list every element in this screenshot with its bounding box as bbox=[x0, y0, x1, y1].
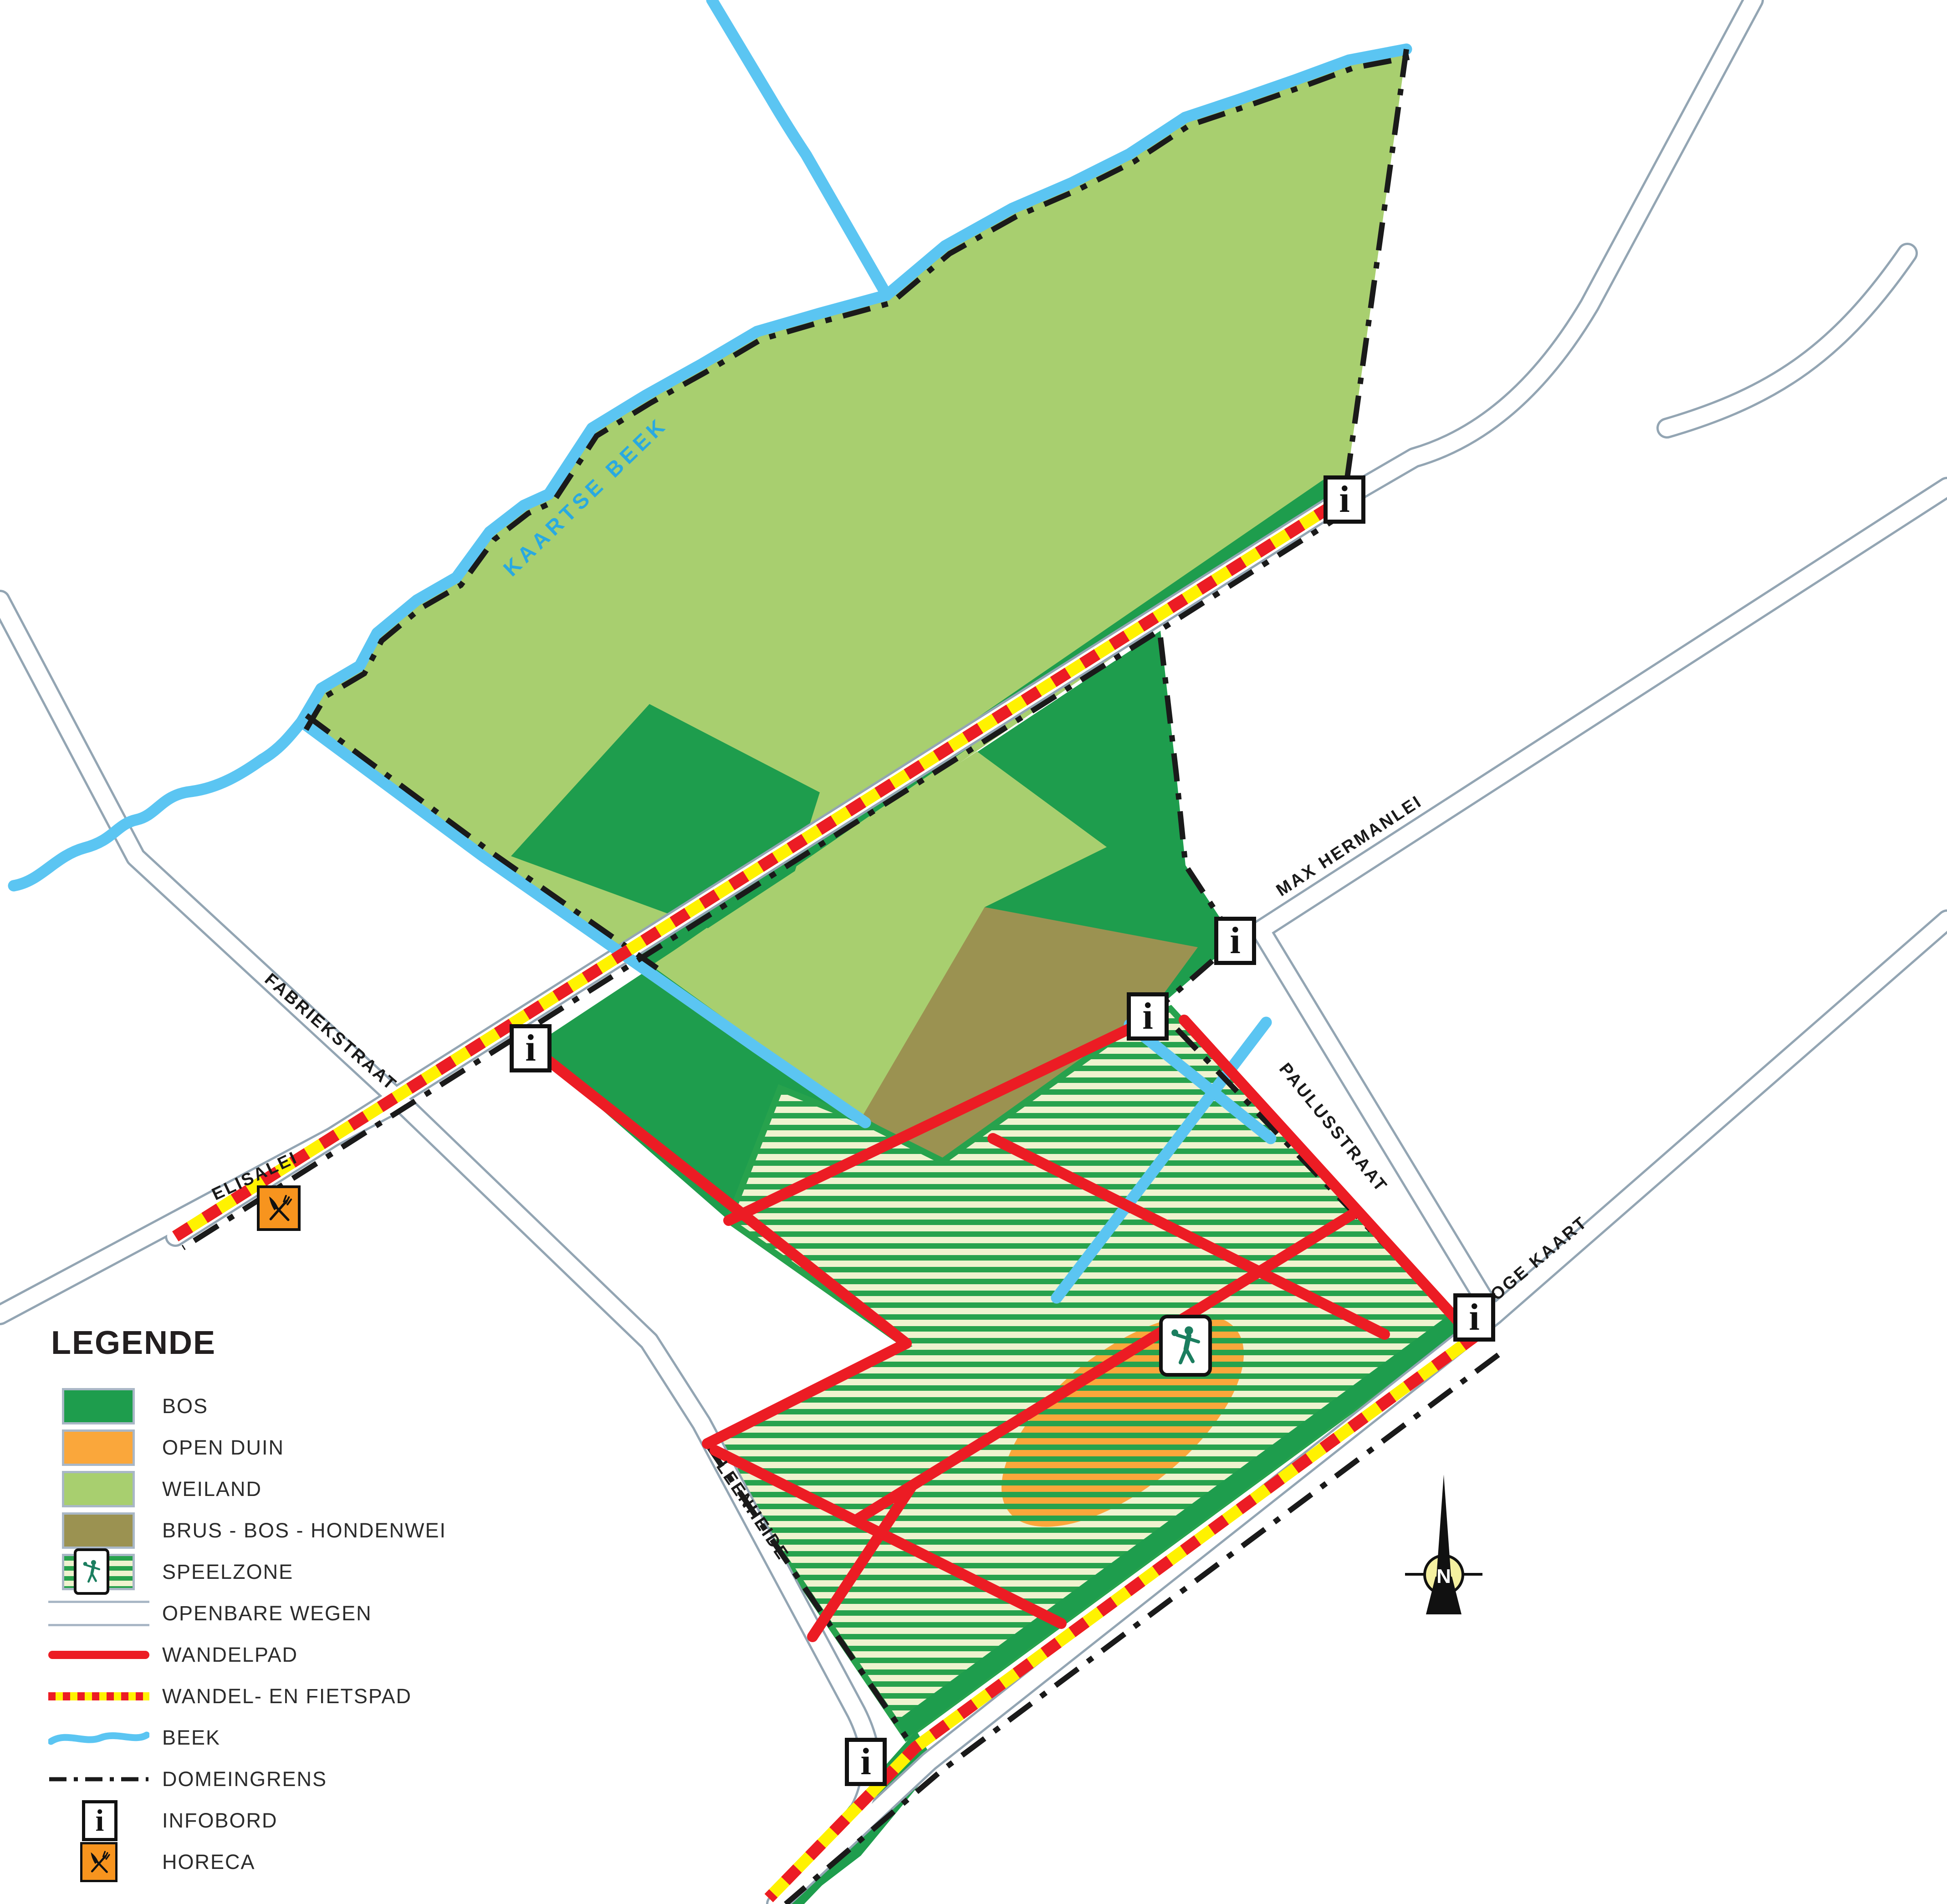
infobord-marker-max-hermanlei[interactable]: i bbox=[1214, 917, 1256, 965]
domeingrens-line bbox=[48, 1775, 149, 1784]
info-icon: i bbox=[82, 1800, 118, 1841]
beek-line bbox=[48, 1728, 149, 1748]
info-icon: i bbox=[860, 1745, 871, 1779]
knife-fork-icon bbox=[80, 1842, 118, 1882]
legend-item-bos: BOS bbox=[48, 1385, 572, 1427]
legend-item-fietspad: WANDEL- EN FIETSPAD bbox=[48, 1675, 572, 1717]
info-icon: i bbox=[1469, 1300, 1479, 1335]
legend-item-speelzone: SPEELZONE bbox=[48, 1551, 572, 1593]
info-icon: i bbox=[1230, 924, 1240, 958]
bos-swatch bbox=[62, 1388, 135, 1424]
playing-person-icon bbox=[74, 1548, 109, 1595]
fietspad-line bbox=[48, 1692, 149, 1700]
open-duin-swatch bbox=[62, 1429, 135, 1466]
legend-item-open-duin: OPEN DUIN bbox=[48, 1427, 572, 1468]
infobord-marker-fabriekstraat[interactable]: i bbox=[510, 1024, 552, 1072]
infobord-marker-north[interactable]: i bbox=[1324, 475, 1365, 524]
legend-title: LEGENDE bbox=[51, 1324, 572, 1362]
legend-item-infobord: i INFOBORD bbox=[48, 1800, 572, 1841]
brus-swatch bbox=[62, 1512, 135, 1549]
legend-item-wandelpad: WANDELPAD bbox=[48, 1634, 572, 1675]
info-icon: i bbox=[525, 1031, 536, 1066]
info-icon: i bbox=[1142, 999, 1153, 1034]
speelzone-marker[interactable] bbox=[1159, 1315, 1212, 1377]
infobord-marker-south[interactable]: i bbox=[845, 1738, 887, 1786]
legend-item-domeingrens: DOMEINGRENS bbox=[48, 1758, 572, 1800]
info-icon: i bbox=[1339, 482, 1349, 517]
weiland-swatch bbox=[62, 1471, 135, 1507]
knife-fork-icon bbox=[264, 1194, 293, 1223]
wandelpad-line bbox=[48, 1651, 149, 1659]
map-canvas[interactable]: N KAARTSE BEEK FABRIEKSTRAAT ELISALEI MA… bbox=[0, 0, 1947, 1904]
playing-person-icon bbox=[1169, 1325, 1202, 1367]
road-swatch bbox=[48, 1601, 149, 1626]
infobord-marker-hoge-kaart[interactable]: i bbox=[1453, 1293, 1495, 1342]
compass-north-label: N bbox=[1436, 1565, 1451, 1588]
legend-item-beek: BEEK bbox=[48, 1717, 572, 1758]
horeca-marker[interactable] bbox=[257, 1185, 301, 1231]
legend-item-openbare-wegen: OPENBARE WEGEN bbox=[48, 1593, 572, 1634]
legend-panel: LEGENDE BOS OPEN DUIN WEILAND BRUS - BOS… bbox=[48, 1324, 572, 1883]
legend-item-brus: BRUS - BOS - HONDENWEI bbox=[48, 1510, 572, 1551]
infobord-marker-hondenwei[interactable]: i bbox=[1127, 992, 1169, 1041]
legend-item-weiland: WEILAND bbox=[48, 1468, 572, 1510]
legend-item-horeca: HORECA bbox=[48, 1841, 572, 1883]
